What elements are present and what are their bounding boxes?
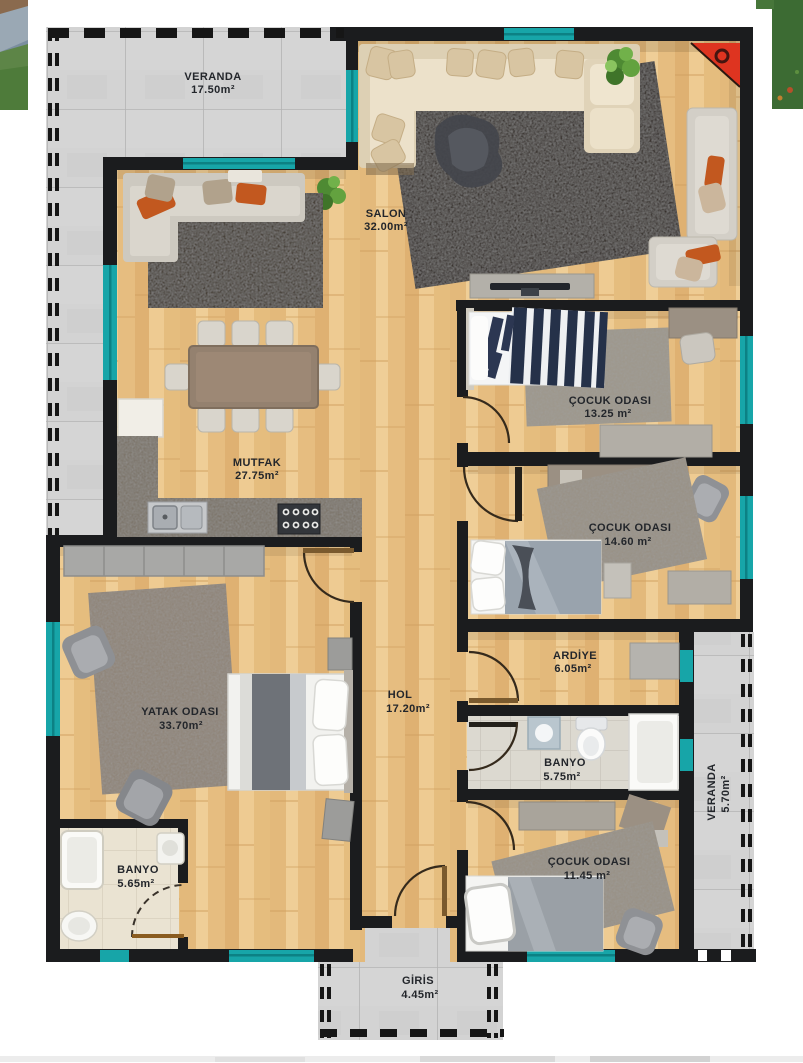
svg-text:BANYO: BANYO xyxy=(544,757,586,769)
svg-text:33.70m²: 33.70m² xyxy=(159,720,203,732)
svg-text:17.20m²: 17.20m² xyxy=(386,703,430,715)
svg-text:5.75m²: 5.75m² xyxy=(543,771,580,783)
svg-text:ÇOCUK ODASI: ÇOCUK ODASI xyxy=(589,522,672,534)
svg-text:ÇOCUK ODASI: ÇOCUK ODASI xyxy=(548,856,631,868)
svg-text:5.65m²: 5.65m² xyxy=(117,878,154,890)
svg-text:5.70m²: 5.70m² xyxy=(720,775,732,812)
svg-text:13.25 m²: 13.25 m² xyxy=(584,408,631,420)
svg-text:ÇOCUK ODASI: ÇOCUK ODASI xyxy=(569,395,652,407)
svg-text:HOL: HOL xyxy=(388,689,412,701)
svg-text:MUTFAK: MUTFAK xyxy=(233,457,281,469)
svg-text:32.00m²: 32.00m² xyxy=(364,221,408,233)
svg-text:17.50m²: 17.50m² xyxy=(191,84,235,96)
svg-text:VERANDA: VERANDA xyxy=(706,763,718,820)
svg-text:VERANDA: VERANDA xyxy=(184,71,241,83)
svg-text:BANYO: BANYO xyxy=(117,864,159,876)
svg-text:GİRİS: GİRİS xyxy=(402,974,434,987)
svg-text:11.45 m²: 11.45 m² xyxy=(564,870,611,882)
svg-text:14.60 m²: 14.60 m² xyxy=(604,536,651,548)
svg-text:27.75m²: 27.75m² xyxy=(235,470,279,482)
svg-text:SALON: SALON xyxy=(366,208,407,220)
svg-text:YATAK ODASI: YATAK ODASI xyxy=(141,706,219,718)
svg-text:6.05m²: 6.05m² xyxy=(554,663,591,675)
svg-text:ARDİYE: ARDİYE xyxy=(553,649,597,662)
svg-text:4.45m²: 4.45m² xyxy=(401,989,438,1001)
